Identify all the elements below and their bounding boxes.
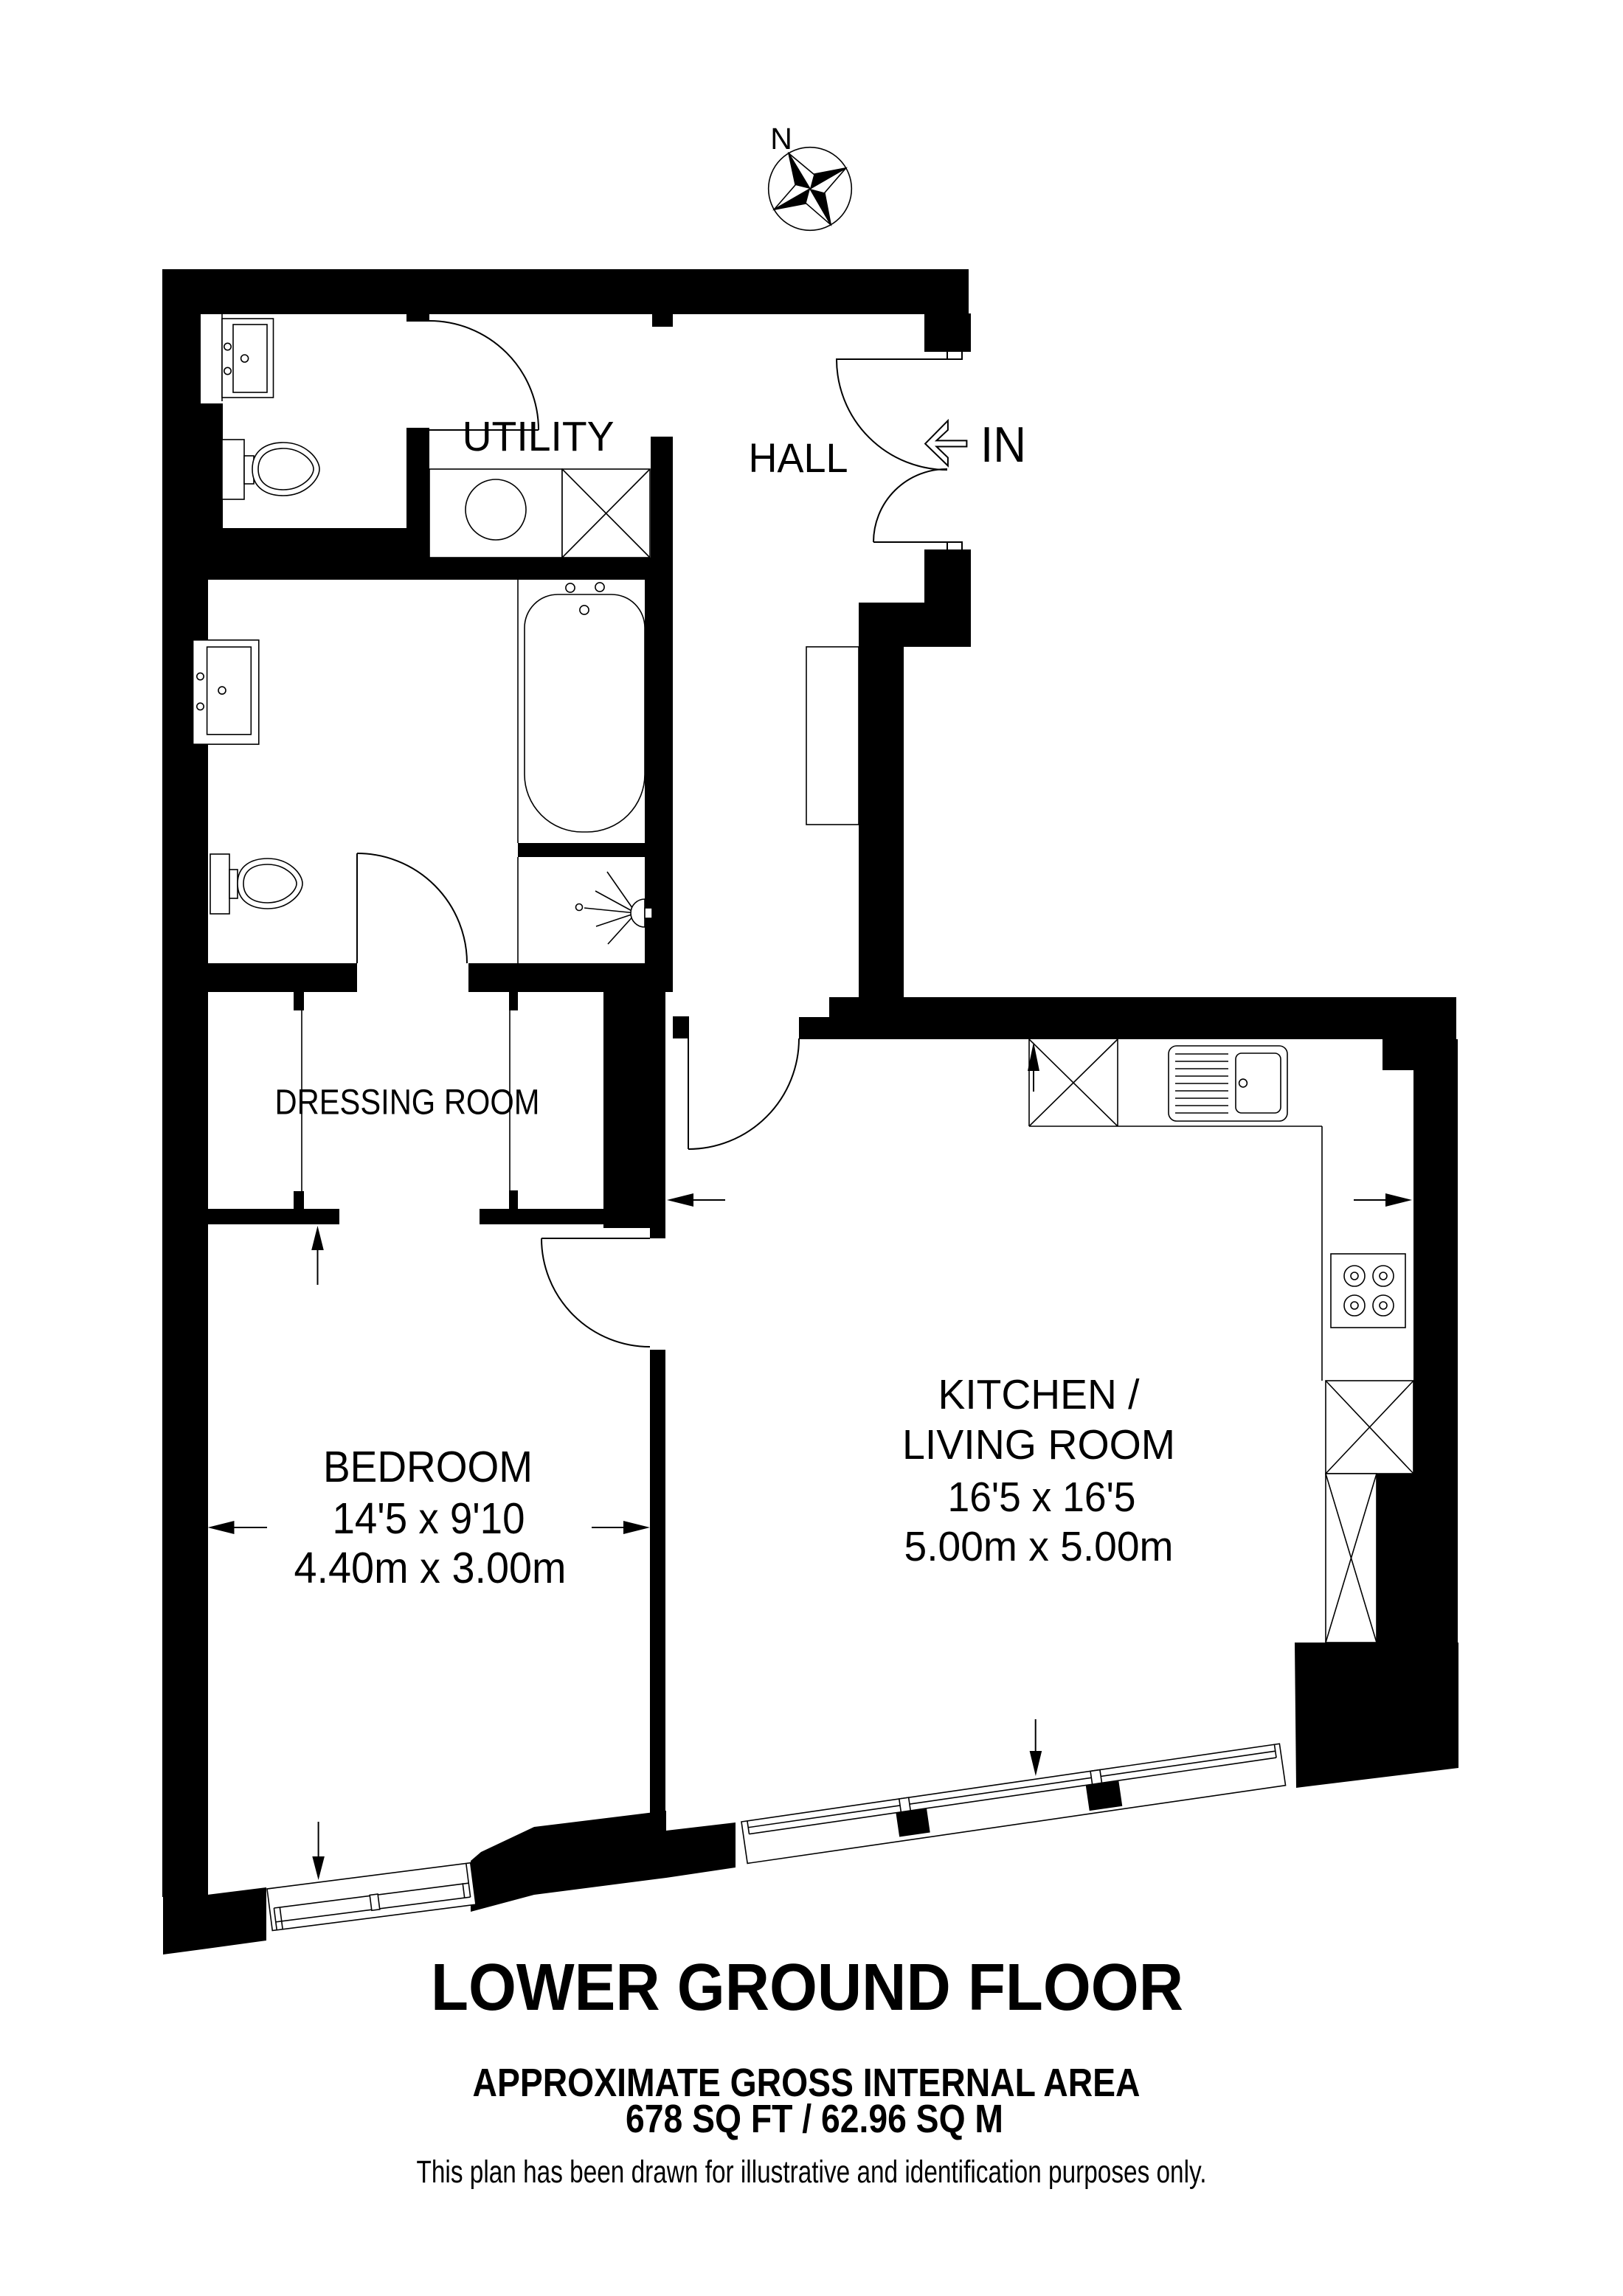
svg-text:678 SQ FT / 62.96 SQ M: 678 SQ FT / 62.96 SQ M — [626, 2097, 1003, 2141]
svg-text:IN: IN — [980, 417, 1026, 473]
svg-text:BEDROOM: BEDROOM — [323, 1443, 533, 1491]
svg-text:4.40m x 3.00m: 4.40m x 3.00m — [294, 1544, 567, 1592]
svg-text:14'5 x 9'10: 14'5 x 9'10 — [333, 1494, 525, 1543]
svg-text:N: N — [770, 122, 792, 156]
svg-text:5.00m x 5.00m: 5.00m x 5.00m — [904, 1523, 1174, 1570]
svg-text:LIVING ROOM: LIVING ROOM — [902, 1421, 1175, 1468]
svg-text:HALL: HALL — [749, 434, 848, 481]
svg-text:UTILITY: UTILITY — [463, 413, 615, 460]
svg-text:KITCHEN /: KITCHEN / — [938, 1371, 1140, 1418]
svg-text:16'5 x 16'5: 16'5 x 16'5 — [948, 1474, 1136, 1521]
svg-text:This plan has been drawn for i: This plan has been drawn for illustrativ… — [417, 2154, 1207, 2190]
svg-text:DRESSING ROOM: DRESSING ROOM — [275, 1083, 540, 1123]
svg-text:LOWER GROUND FLOOR: LOWER GROUND FLOOR — [431, 1951, 1183, 2025]
